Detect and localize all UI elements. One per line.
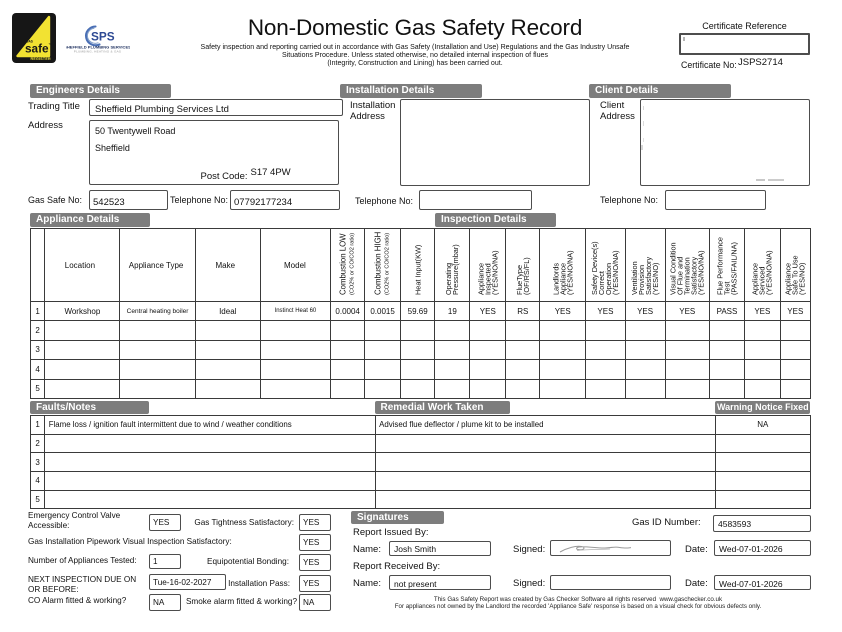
- svg-text:TM: TM: [49, 42, 53, 46]
- svg-text:SPS: SPS: [91, 29, 115, 43]
- svg-text:safe: safe: [25, 42, 49, 56]
- svg-text:REGISTER: REGISTER: [31, 57, 52, 61]
- svg-text:PLUMBING, HEATING & GAS: PLUMBING, HEATING & GAS: [74, 49, 121, 53]
